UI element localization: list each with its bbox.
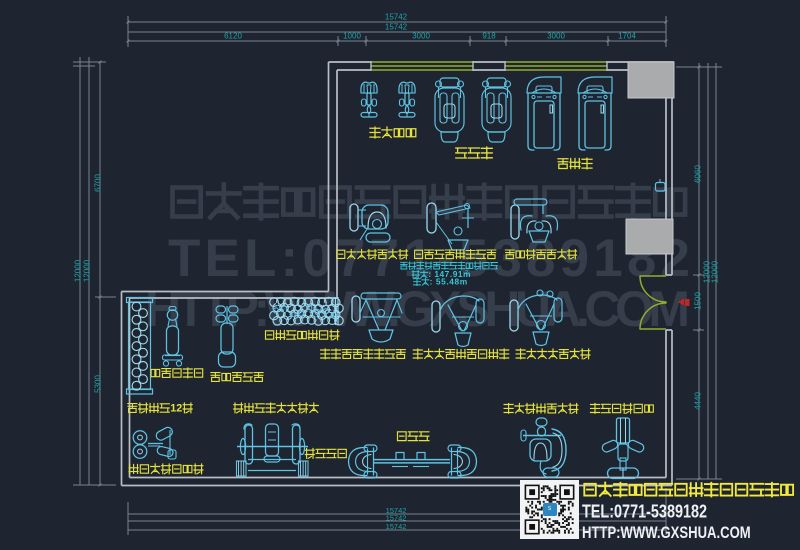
svg-text:12000: 12000 bbox=[74, 259, 83, 282]
svg-text:6120: 6120 bbox=[224, 32, 242, 41]
svg-text:12: 12 bbox=[170, 402, 182, 414]
svg-text:4440: 4440 bbox=[694, 392, 703, 410]
svg-text:1500: 1500 bbox=[694, 292, 703, 310]
svg-text:1000: 1000 bbox=[343, 32, 361, 41]
svg-text:12000: 12000 bbox=[711, 260, 720, 283]
svg-text:2: 2 bbox=[465, 270, 468, 276]
svg-text:3000: 3000 bbox=[412, 32, 430, 41]
svg-text:15742: 15742 bbox=[385, 13, 408, 22]
svg-text:6060: 6060 bbox=[694, 165, 703, 183]
svg-text:15742: 15742 bbox=[385, 23, 408, 32]
svg-text:6700: 6700 bbox=[94, 174, 103, 192]
svg-text:HTTP:WWW.GXSHUA.COM: HTTP:WWW.GXSHUA.COM bbox=[582, 524, 751, 543]
svg-text:12000: 12000 bbox=[83, 259, 92, 282]
svg-text:918: 918 bbox=[482, 32, 496, 41]
svg-text:1704: 1704 bbox=[618, 32, 636, 41]
svg-text:3000: 3000 bbox=[547, 32, 565, 41]
svg-text:: 55.48m: : 55.48m bbox=[430, 276, 468, 286]
svg-text:TEL:0771-5389182: TEL:0771-5389182 bbox=[582, 501, 707, 522]
svg-text:5300: 5300 bbox=[94, 375, 103, 393]
svg-text:15742: 15742 bbox=[386, 522, 407, 531]
